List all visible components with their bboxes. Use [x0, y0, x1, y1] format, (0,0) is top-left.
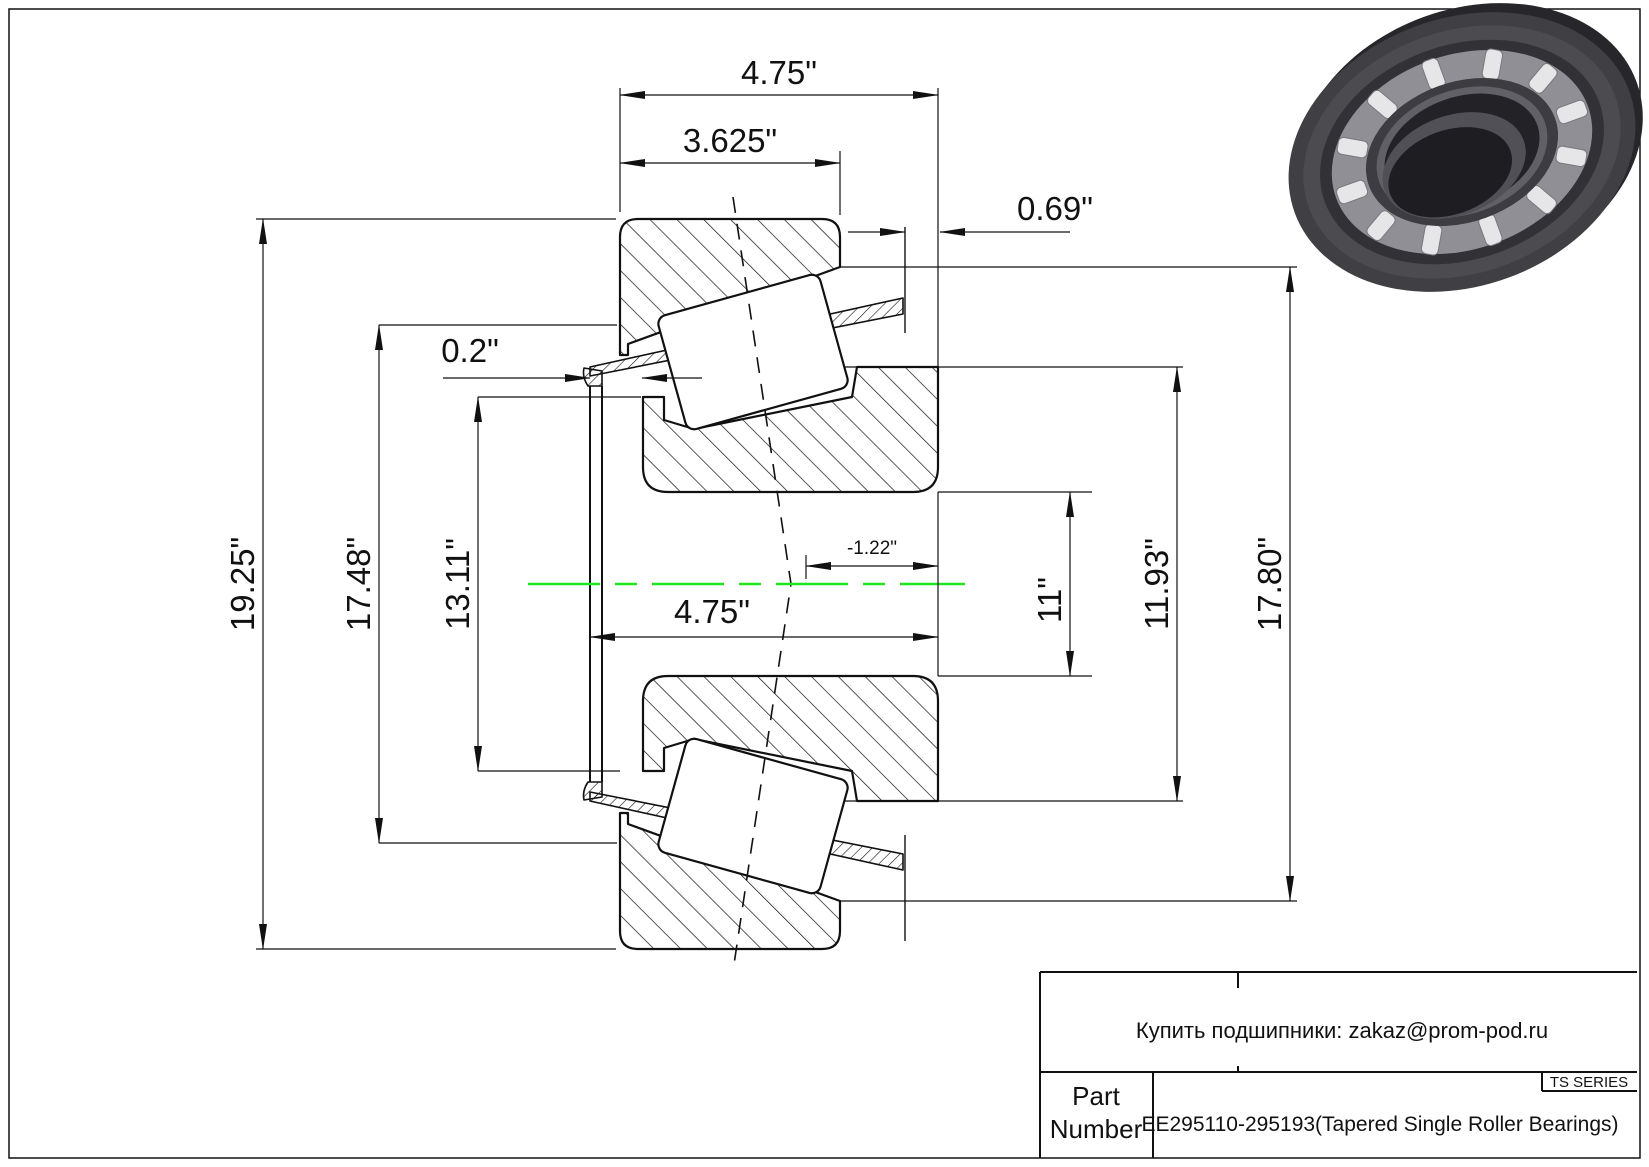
part-label-line1: Part	[1072, 1081, 1120, 1111]
bearing-3d-render	[1247, 0, 1649, 339]
cage-lip-upper	[584, 368, 603, 386]
dim-cup-back-diameter: 17.80"	[1251, 267, 1290, 901]
dim-apex-offset: -1.22"	[806, 538, 938, 579]
dim-cone-back-diameter-label: 11.93"	[1138, 538, 1175, 630]
dim-cup-width: 3.625"	[620, 122, 840, 163]
dim-bore-diameter: 11"	[1031, 492, 1070, 676]
dim-stand-out-label: 0.69"	[1017, 190, 1093, 227]
dim-cage-outer-diameter-label: 17.48"	[340, 537, 377, 631]
dim-outer-diameter-label: 19.25"	[224, 537, 261, 631]
drawing-page: 4.75" 3.625" 0.69" 0.2" 4.75" -1.22"	[0, 0, 1649, 1167]
lower-half	[584, 676, 939, 949]
dim-cup-back-diameter-label: 17.80"	[1251, 537, 1288, 631]
dim-cone-front-diameter: 13.11"	[439, 397, 478, 771]
upper-half	[584, 219, 939, 492]
dim-stand-out: 0.69"	[848, 190, 1093, 232]
dim-bore-width-label: 4.75"	[674, 593, 750, 630]
vendor-contact-text: Купить подшипники: zakaz@prom-pod.ru	[1136, 1018, 1548, 1043]
dim-apex-offset-label: -1.22"	[847, 538, 897, 559]
dim-flange-thickness-label: 0.2"	[441, 332, 499, 369]
part-number-text: EE295110-295193(Tapered Single Roller Be…	[1141, 1113, 1618, 1136]
title-block: Купить подшипники: zakaz@prom-pod.ru TS …	[1040, 972, 1637, 1158]
dim-outer-diameter: 19.25"	[224, 219, 263, 949]
part-label-line2: Number	[1050, 1114, 1143, 1144]
series-label: TS SERIES	[1550, 1074, 1628, 1091]
dim-cup-width-label: 3.625"	[683, 122, 777, 159]
dim-cone-back-diameter: 11.93"	[1138, 367, 1177, 801]
technical-drawing-canvas: 4.75" 3.625" 0.69" 0.2" 4.75" -1.22"	[0, 0, 1649, 1167]
dim-cone-front-diameter-label: 13.11"	[439, 538, 476, 630]
dim-overall-width-label: 4.75"	[741, 54, 817, 91]
cage-lip-lower	[584, 782, 603, 800]
dim-bore-width: 4.75"	[590, 593, 938, 637]
bearing-cross-section	[528, 197, 965, 971]
dim-cage-outer-diameter: 17.48"	[340, 325, 379, 843]
dim-bore-diameter-label: 11"	[1031, 577, 1068, 623]
dim-overall-width: 4.75"	[620, 54, 938, 95]
